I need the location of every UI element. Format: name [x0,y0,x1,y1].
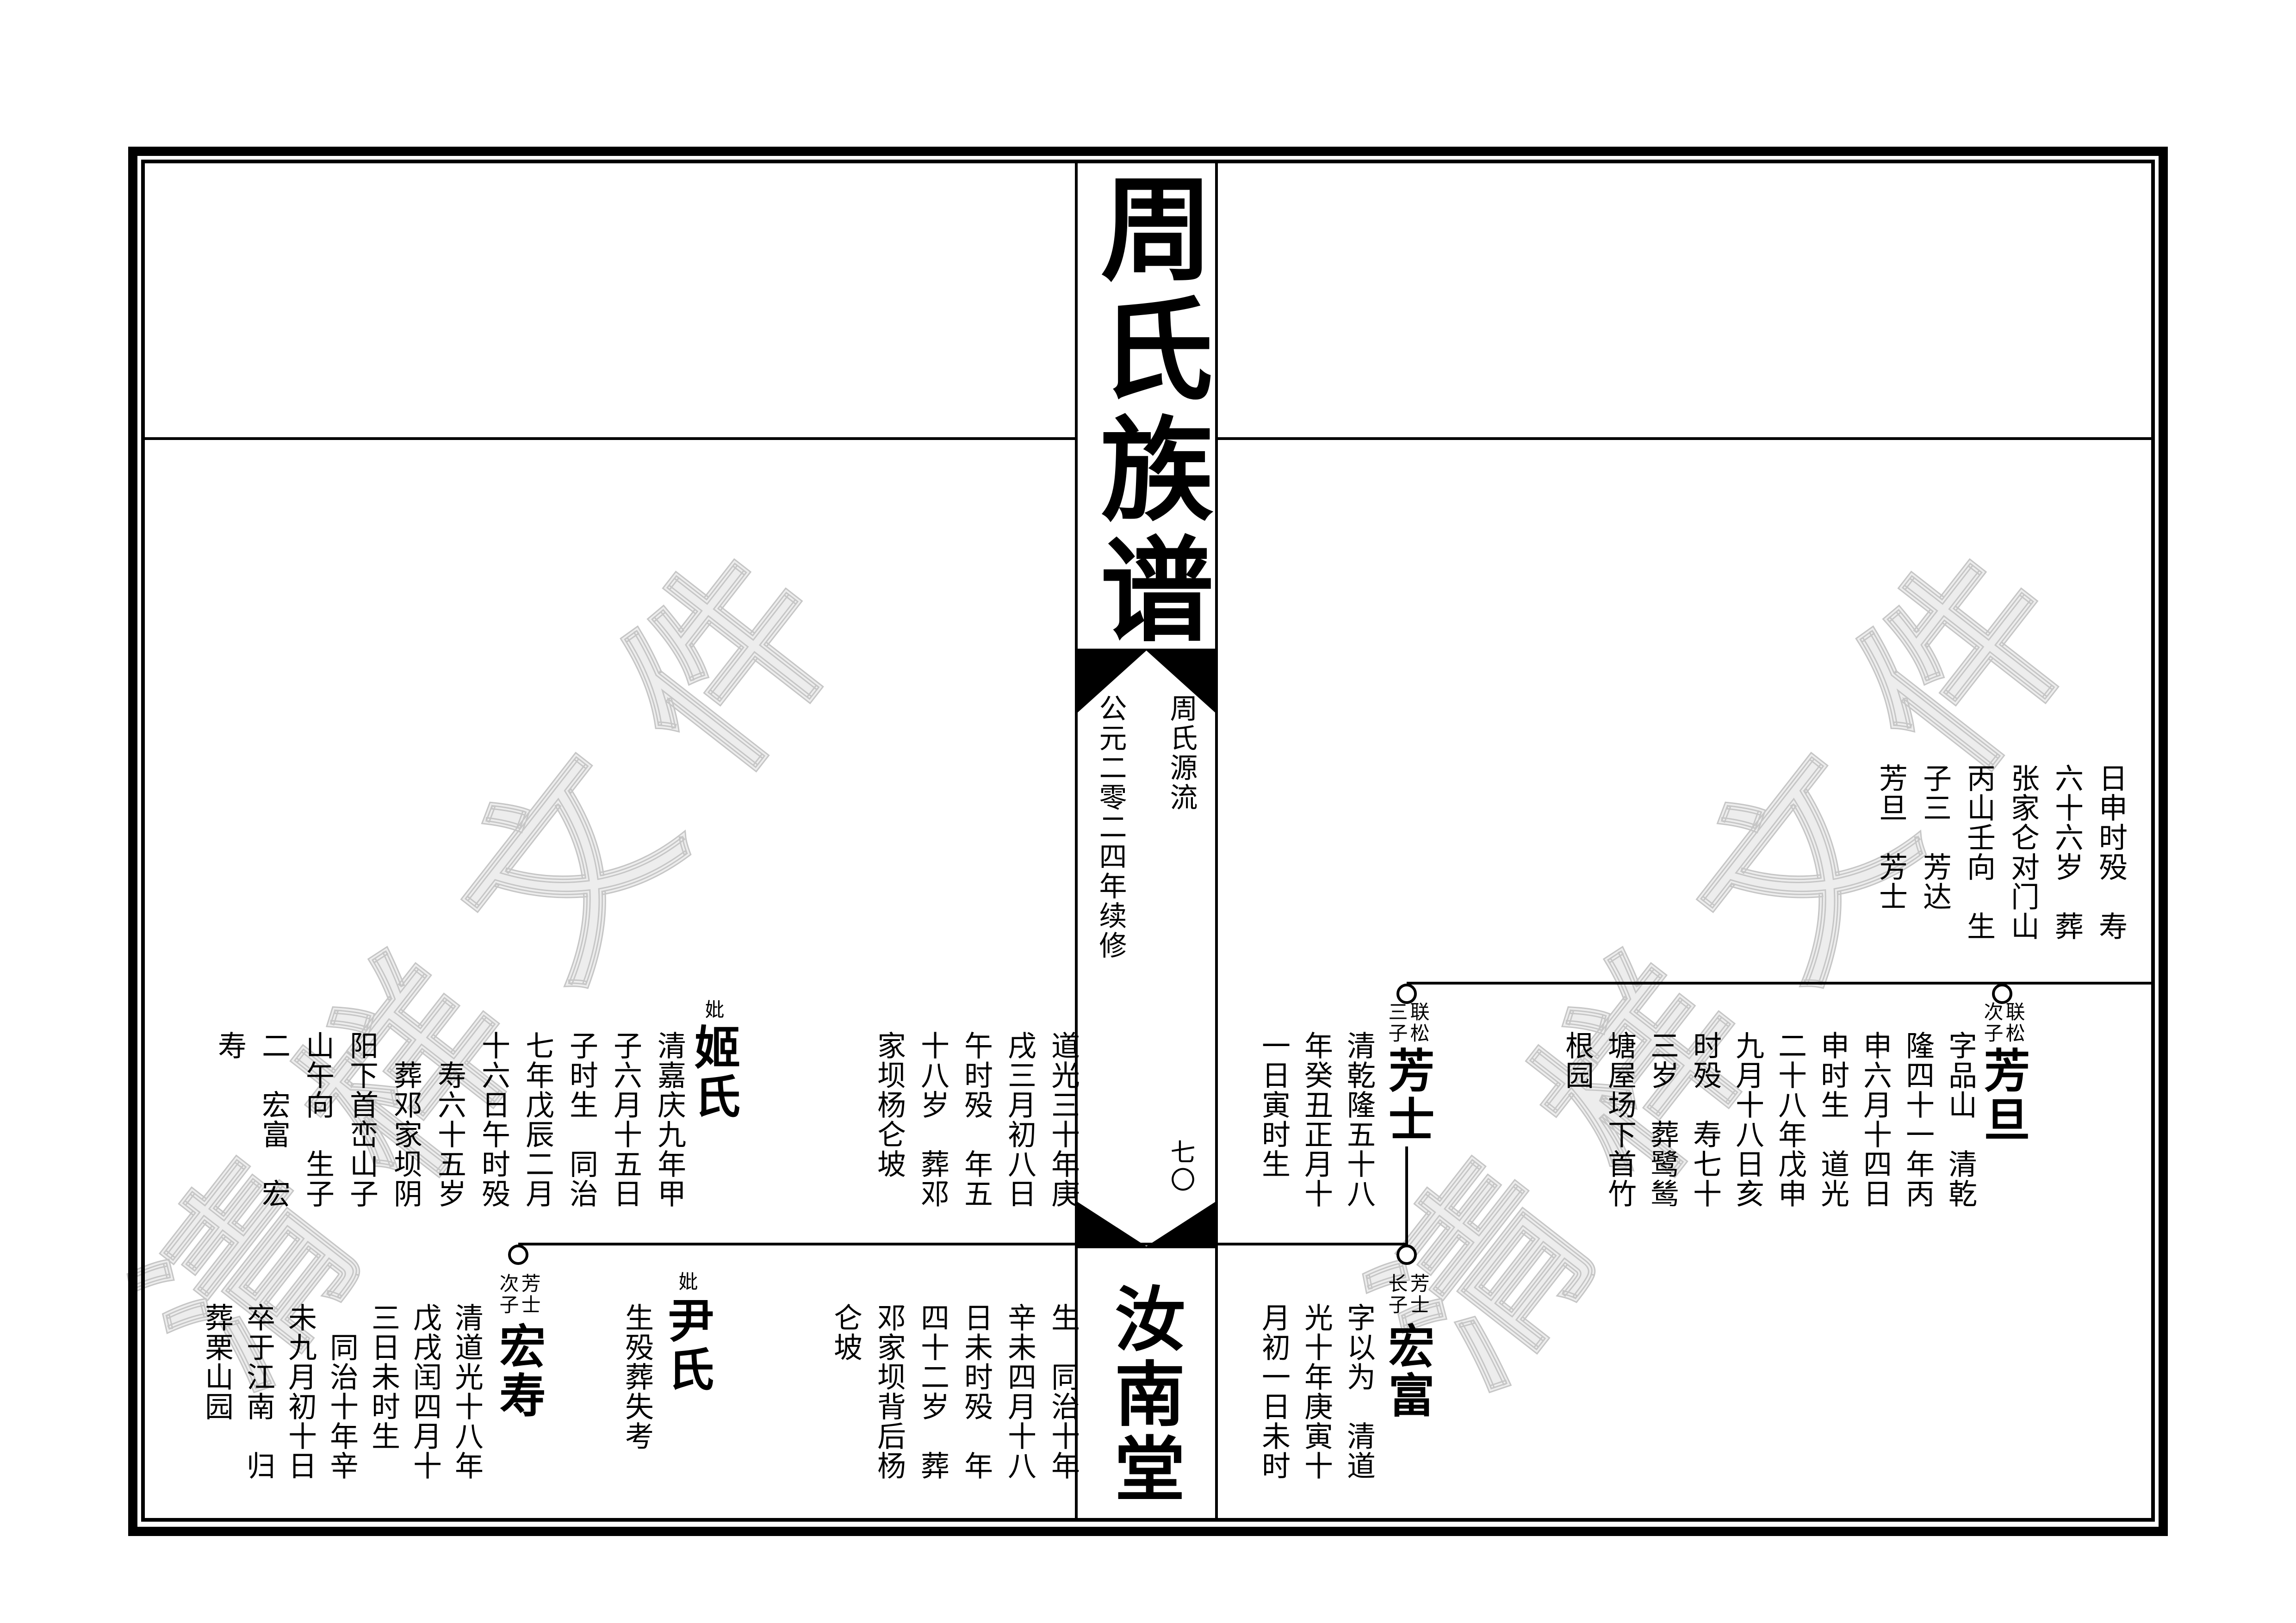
fangdan-bio-column-8: 三岁 葬鹭鸶 [1647,1031,1676,1208]
hall-name: 汝南堂 [1108,1282,1178,1507]
fangshi-bio-column-6: 午时殁 年五 [961,1031,990,1208]
fangshi-bio-column-5: 戌三月初八日 [1005,1031,1033,1208]
ancestor-record-column-4: 丙山壬向 生 [1964,763,1992,941]
jishi-bio-column-11: 寿 [215,1031,243,1060]
fangdan-name: 芳旦 [1979,1047,2025,1145]
jishi-bio-column-8: 阳下首峦山子 [347,1031,375,1208]
hongshou-bio-column-6: 卒于江南 归 [243,1303,272,1481]
header-rule-left [145,437,1076,440]
hongshou-bio-column-1: 清道光十八年 [452,1303,480,1481]
jishi-bio-column-10: 二 宏富 宏 [259,1031,287,1208]
fangdan-bio-column-3: 申六月十四日 [1860,1031,1889,1208]
yinshi-relation-label: 妣 [675,1271,697,1293]
jishi-bio-column-5: 十六日午时殁 [478,1031,507,1208]
spine-edition-note: 公元二零二四年续修 [1097,694,1124,960]
jishi-bio-column-9: 山午向 生子 [303,1031,331,1208]
node-circle-fangshi [1396,984,1417,1004]
hongfu-bio-column-6: 日未时殁 年 [961,1303,990,1481]
hongshou-bio-column-5: 未九月初十日 [285,1303,314,1481]
fangshi-bio-column-3: 一日寅时生 [1259,1031,1287,1179]
jishi-relation-label: 妣 [701,999,723,1021]
hongfu-relation-label: 芳士 长子 [1385,1273,1428,1316]
fangshi-bio-column-1: 清乾隆五十八 [1344,1031,1372,1208]
fangdan-relation-label: 联松 次子 [1980,1002,2024,1044]
hongshou-relation-label: 芳士 次子 [496,1273,540,1316]
jishi-name: 姬氏 [689,1023,736,1121]
fangdan-bio-column-7: 时殁 寿七十 [1690,1031,1719,1208]
ancestor-record-column-6: 芳旦 芳士 [1876,763,1905,911]
hongshou-name: 宏寿 [495,1322,541,1420]
ancestor-record-column-5: 子三 芳达 [1920,763,1948,911]
jishi-bio-column-4: 七年戊辰二月 [522,1031,551,1208]
hongfu-bio-column-7: 四十二岁 葬 [918,1303,946,1481]
hongfu-bio-column-4: 生 同治十年 [1048,1303,1077,1481]
jishi-bio-column-3: 子时生 同治 [566,1031,595,1208]
node-circle-hongfu [1396,1245,1417,1265]
hongshou-bio-column-7: 葬栗山园 [202,1303,230,1421]
ancestor-record-column-2: 六十六岁 葬 [2052,763,2080,941]
sibling-line-lower [518,1243,1408,1245]
hongfu-bio-column-1: 字以为 清道 [1344,1303,1372,1481]
descent-line-fangshi [1405,1146,1408,1245]
fangdan-bio-column-10: 根园 [1562,1031,1591,1090]
yinshi-name: 尹氏 [663,1296,709,1394]
ancestor-record-column-1: 日申时殁 寿 [2096,763,2124,941]
fangshi-bio-column-2: 年癸丑正月十 [1301,1031,1330,1208]
hongfu-bio-column-3: 月初一日未时 [1259,1303,1287,1481]
fangshi-bio-column-4: 道光三十年庚 [1048,1031,1077,1208]
fangshi-bio-column-8: 家坝杨仑坡 [874,1031,903,1179]
hongfu-bio-column-9: 仑坡 [831,1303,859,1362]
hongshou-bio-column-4: 同治十年辛 [327,1303,355,1481]
book-title: 周氏族谱 [1090,170,1203,651]
hongshou-bio-column-3: 三日未时生 [368,1303,397,1451]
fangdan-bio-column-6: 九月十八日亥 [1732,1031,1761,1208]
ancestor-record-column-3: 张家仑对门山 [2008,763,2036,941]
jishi-bio-column-7: 葬邓家坝阴 [391,1031,419,1208]
hongfu-bio-column-2: 光十年庚寅十 [1301,1303,1330,1481]
jishi-bio-column-2: 子六月十五日 [610,1031,639,1208]
genealogy-page: 清样文件 清样文件 周氏族谱 周氏源流 公元二零二四年续修 七〇 汝南堂 日申时… [0,0,2296,1623]
fangdan-bio-column-5: 二十八年戊申 [1775,1031,1804,1208]
node-circle-hongshou [508,1245,528,1265]
jishi-bio-column-6: 寿六十五岁 [434,1031,463,1208]
hongshou-bio-column-2: 戊戌闰四月十 [410,1303,439,1481]
hongfu-name: 宏富 [1384,1322,1430,1420]
hongfu-bio-column-8: 邓家坝背后杨 [874,1303,903,1481]
spine-right-line [1215,163,1218,1518]
fangshi-relation-label: 联松 三子 [1385,1002,1428,1044]
header-rule-right [1216,437,2151,440]
sibling-line-upper [1407,982,2151,985]
fangshi-name: 芳士 [1384,1047,1430,1145]
page-number: 七〇 [1168,1139,1193,1195]
fangdan-bio-column-4: 申时生 道光 [1818,1031,1846,1208]
jishi-bio-column-1: 清嘉庆九年甲 [654,1031,683,1208]
node-circle-fangdan [1992,984,2012,1004]
yinshi-bio-column-1: 生殁葬失考 [622,1303,651,1451]
fangshi-bio-column-7: 十八岁 葬邓 [918,1031,946,1208]
fangdan-bio-column-1: 字品山 清乾 [1945,1031,1974,1208]
hongfu-bio-column-5: 辛未四月十八 [1005,1303,1033,1481]
fangdan-bio-column-2: 隆四十一年丙 [1903,1031,1931,1208]
spine-section-label: 周氏源流 [1167,694,1195,812]
fangdan-bio-column-9: 塘屋场下首竹 [1605,1031,1633,1208]
